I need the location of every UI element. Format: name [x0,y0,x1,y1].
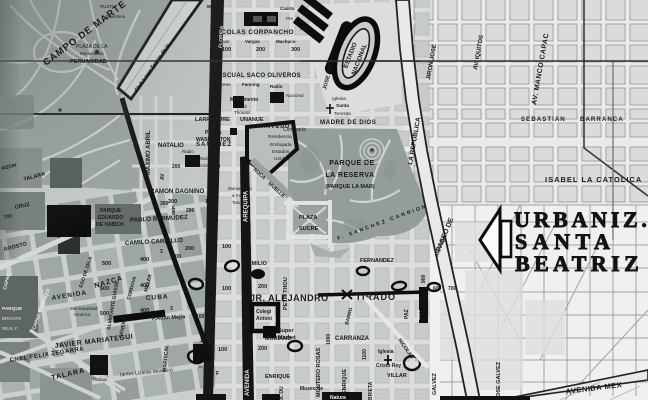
svg-text:MARIANO: MARIANO [265,336,292,342]
svg-text:PARQUE DE: PARQUE DE [329,160,375,167]
svg-text:PAZ: PAZ [404,309,410,319]
svg-text:3: 3 [160,249,163,255]
svg-text:Torres: Torres [218,82,231,87]
svg-text:Embajada: Embajada [270,142,292,148]
svg-text:BRIGATE: BRIGATE [2,316,21,321]
svg-text:Iglesia: Iglesia [332,96,346,102]
svg-text:300: 300 [172,254,181,260]
svg-text:200: 200 [258,346,267,352]
svg-text:600: 600 [433,286,442,292]
svg-text:Min: Min [215,8,223,13]
svg-text:ISABEL LA CATOLICA: ISABEL LA CATOLICA [545,175,642,184]
svg-text:BARRANCA: BARRANCA [580,116,624,123]
svg-text:Pre: Pre [286,16,294,21]
svg-text:100: 100 [196,314,205,320]
svg-text:ENRIQUE: ENRIQUE [265,374,290,380]
svg-text:Iglesia: Iglesia [378,349,394,355]
svg-text:AVENIDA: AVENIDA [245,369,251,396]
svg-text:Fanning: Fanning [242,82,260,87]
svg-text:Minist: Minist [95,364,108,369]
svg-text:100: 100 [222,286,231,292]
svg-text:100: 100 [212,164,221,170]
svg-text:SEP: SEP [171,206,176,215]
svg-text:100: 100 [205,199,214,205]
svg-text:100: 100 [218,347,227,353]
svg-text:200: 200 [256,47,265,53]
svg-text:REAL F: REAL F [2,326,18,331]
svg-text:Natura: Natura [330,395,346,400]
svg-text:Nacional: Nacional [286,93,304,98]
svg-text:A. DU: A. DU [279,386,285,400]
svg-text:Salud: Salud [200,163,212,168]
svg-text:Super: Super [278,328,294,334]
svg-text:LARRABURE: LARRABURE [195,117,230,123]
svg-text:PARQUE: PARQUE [100,208,122,214]
svg-text:Nac. de: Nac. de [200,156,216,161]
svg-text:SANCHEZ: SANCHEZ [196,142,232,148]
svg-text:Monumento: Monumento [228,186,252,191]
svg-text:Cuarto: Cuarto [280,6,295,11]
svg-text:RAMON DAGNINO: RAMON DAGNINO [150,188,204,195]
svg-text:PETIT THOU: PETIT THOU [283,277,289,310]
svg-text:Teresita: Teresita [334,111,351,117]
svg-text:500: 500 [102,261,111,267]
svg-text:200: 200 [185,246,194,252]
svg-text:Radio: Radio [182,149,194,154]
svg-text:DE HABICH: DE HABICH [96,222,124,228]
svg-text:JOSE GALVEZ: JOSE GALVEZ [496,361,502,400]
svg-text:PASCUAL SACO OLIVEROS: PASCUAL SACO OLIVEROS [214,72,301,79]
svg-text:100: 100 [200,338,209,344]
svg-text:PERUANIDAD: PERUANIDAD [70,59,107,65]
svg-text:CARRANZA: CARRANZA [335,336,370,342]
svg-text:AREQUIPA: AREQUIPA [244,190,250,222]
svg-text:BRIETA: BRIETA [368,381,374,400]
svg-text:EDUARDO: EDUARDO [98,215,123,221]
svg-text:FLORIDA: FLORIDA [218,25,225,48]
svg-text:200: 200 [168,199,177,205]
svg-text:ENRIQUE: ENRIQUE [342,369,348,394]
svg-text:Antoni: Antoni [256,316,272,322]
svg-text:Machuco: Machuco [276,39,296,44]
svg-text:1000: 1000 [326,334,332,345]
svg-text:FERNANDEZ: FERNANDEZ [360,258,395,264]
svg-text:300: 300 [291,47,300,53]
svg-text:Radio: Radio [270,84,283,89]
svg-text:PARQUE: PARQUE [2,306,23,312]
svg-text:Monumento: Monumento [80,51,104,56]
svg-text:Comisaría: Comisaría [283,127,306,133]
svg-text:F: F [216,371,219,377]
svg-text:Ministerio: Ministerio [106,14,126,19]
svg-text:BEATRIZ: BEATRIZ [515,251,643,276]
svg-text:de: de [98,370,104,375]
svg-text:NICOLAS CORPANCHO: NICOLAS CORPANCHO [214,29,294,36]
svg-text:Unidos: Unidos [274,156,290,162]
svg-text:M: M [207,4,211,9]
svg-text:500: 500 [100,286,109,292]
svg-text:RUSTIL: RUSTIL [100,4,117,9]
svg-text:MAXIMO ABRIL: MAXIMO ABRIL [146,130,152,175]
svg-text:(PARQUE LA MAR): (PARQUE LA MAR) [325,184,375,190]
svg-text:Museo de: Museo de [300,386,323,392]
svg-text:400: 400 [140,308,149,314]
svg-text:Colegi: Colegi [256,309,272,315]
svg-text:300: 300 [160,201,169,207]
svg-text:3: 3 [170,306,173,312]
svg-text:SUCRE: SUCRE [299,226,319,232]
svg-text:NATALIO: NATALIO [158,143,184,149]
svg-text:a Petit: a Petit [234,104,248,109]
svg-text:AV: AV [160,173,166,180]
svg-text:900: 900 [421,274,427,283]
svg-text:200: 200 [258,284,267,290]
svg-text:Municipalidad: Municipalidad [70,306,98,311]
svg-text:SEBASTIAN: SEBASTIAN [521,116,566,123]
svg-text:Trabajo: Trabajo [92,377,108,382]
svg-text:100: 100 [222,244,231,250]
svg-text:Estados: Estados [272,149,290,155]
svg-text:200: 200 [186,208,195,214]
svg-text:Monumento: Monumento [230,97,258,103]
svg-text:EMILIO: EMILIO [248,261,268,267]
svg-text:200: 200 [172,164,181,170]
svg-text:Vargas: Vargas [245,39,260,44]
svg-text:édile: édile [300,26,310,31]
svg-text:LA RESERVA: LA RESERVA [325,172,374,179]
svg-text:PLAZA: PLAZA [299,215,317,221]
svg-text:1100: 1100 [362,349,368,360]
svg-text:Residencia: Residencia [268,134,292,140]
svg-text:MADRE DE DIOS: MADRE DE DIOS [320,119,376,126]
svg-text:Thouars: Thouars [234,110,251,115]
svg-text:PLAZA DE LA: PLAZA DE LA [76,44,108,50]
svg-text:700: 700 [448,286,457,292]
svg-text:TIRADO: TIRADO [352,292,396,302]
svg-text:UNANUE: UNANUE [240,117,264,123]
svg-text:Santa: Santa [336,103,349,109]
svg-text:PLAZA: PLAZA [205,130,222,136]
svg-text:América: América [74,312,91,317]
svg-text:de: de [198,364,204,369]
svg-text:400: 400 [140,257,149,263]
svg-text:VILLAR: VILLAR [387,373,407,379]
svg-text:GALVEZ: GALVEZ [432,372,438,395]
svg-text:1900: 1900 [416,309,421,320]
